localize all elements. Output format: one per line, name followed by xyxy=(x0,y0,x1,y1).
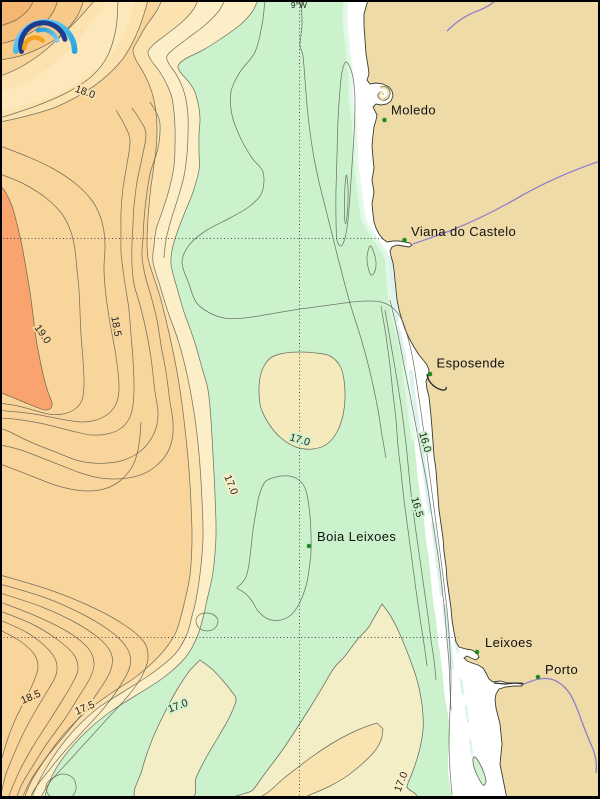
svg-text:Viana do Castelo: Viana do Castelo xyxy=(411,224,516,239)
svg-text:Esposende: Esposende xyxy=(437,356,506,371)
svg-text:Leixoes: Leixoes xyxy=(485,635,533,650)
svg-text:Boia Leixoes: Boia Leixoes xyxy=(317,529,396,544)
svg-text:Moledo: Moledo xyxy=(391,103,436,118)
svg-text:Porto: Porto xyxy=(545,662,578,677)
